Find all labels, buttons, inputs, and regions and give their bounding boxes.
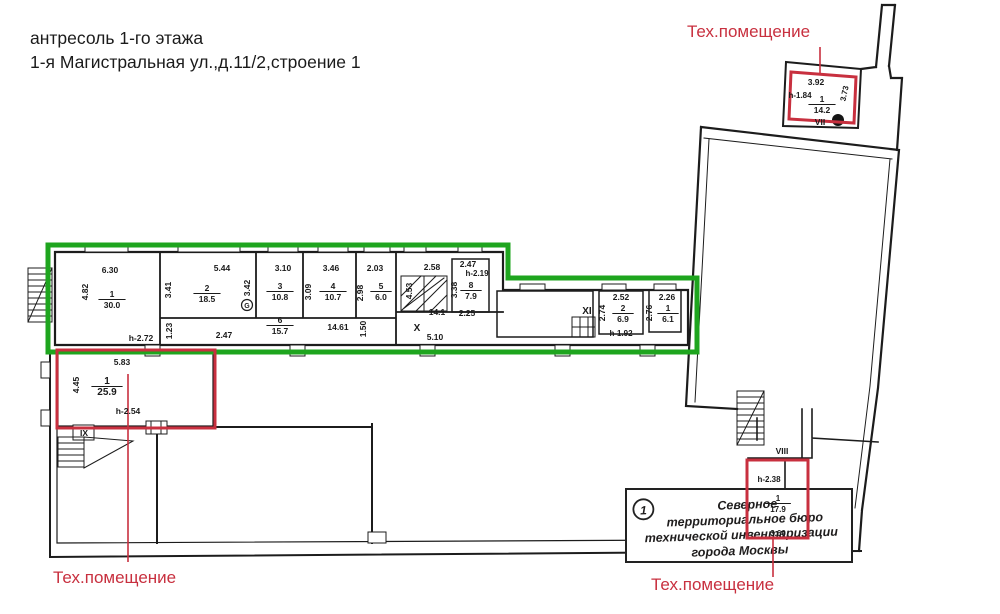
plan-label: 5.44 bbox=[214, 263, 231, 273]
seal-dot bbox=[832, 114, 844, 126]
plan-label: 25.9 bbox=[97, 387, 117, 398]
plan-label: h-2.54 bbox=[116, 406, 141, 416]
shaft-grid bbox=[572, 317, 595, 337]
plan-label: 8 bbox=[469, 280, 474, 290]
plan-title-line2: 1-я Магистральная ул.,д.11/2,строение 1 bbox=[30, 50, 361, 74]
tech-room-label-bottom-right: Тех.помещение bbox=[651, 575, 774, 595]
stamp-number: 1 bbox=[640, 503, 647, 517]
plan-label: 4.82 bbox=[80, 283, 90, 300]
plan-label: 14.61 bbox=[327, 322, 349, 332]
plan-label: X bbox=[414, 323, 421, 334]
plan-label: h-1.84 bbox=[788, 91, 812, 100]
right-section-inner bbox=[695, 138, 892, 508]
room-xi-walls bbox=[497, 291, 593, 337]
plan-label: 2.74 bbox=[597, 304, 607, 321]
plan-label: 6 bbox=[278, 315, 283, 325]
floor-plan-svg: 1 Северное территориальное бюро техничес… bbox=[0, 0, 1000, 614]
plan-label: 30.0 bbox=[104, 300, 121, 310]
plan-label: 14.1 bbox=[429, 307, 446, 317]
plan-label: 2 bbox=[621, 303, 626, 313]
plan-label: 2.47 bbox=[216, 330, 233, 340]
plan-label: 3.46 bbox=[323, 263, 340, 273]
plan-label: 2.47 bbox=[460, 259, 477, 269]
plan-label: 6.0 bbox=[375, 292, 387, 302]
tech-room-label-top-right: Тех.помещение bbox=[687, 22, 810, 42]
plan-label: 3.73 bbox=[839, 84, 851, 102]
plan-label: 4 bbox=[331, 281, 336, 291]
plan-label: 10.8 bbox=[272, 292, 289, 302]
plan-label: 1.50 bbox=[358, 320, 368, 337]
plan-label: 14.2 bbox=[814, 105, 831, 115]
right-section-outer bbox=[686, 5, 902, 551]
stair-ix bbox=[58, 437, 133, 468]
bottom-inner-wall bbox=[57, 428, 695, 543]
plan-label: 1 bbox=[110, 289, 115, 299]
plan-label: 3.38 bbox=[449, 281, 459, 298]
plan-label: 3.60 bbox=[770, 529, 786, 538]
plan-label: 5.83 bbox=[114, 357, 131, 367]
plan-label: 2.58 bbox=[424, 262, 441, 272]
plan-label: h-1.92 bbox=[609, 329, 633, 338]
stair-right bbox=[737, 391, 764, 445]
plan-label: VII bbox=[815, 117, 825, 127]
plan-label: 1 bbox=[104, 376, 110, 387]
plan-label: 2.03 bbox=[367, 263, 384, 273]
plan-label: XI bbox=[582, 306, 592, 317]
plan-label: VIII bbox=[776, 446, 789, 456]
plan-label: 2.52 bbox=[613, 292, 630, 302]
plan-label: 3.09 bbox=[303, 283, 313, 300]
plan-label: 3.10 bbox=[275, 263, 292, 273]
plan-label: 6.9 bbox=[617, 314, 629, 324]
plan-label: IX bbox=[80, 428, 88, 438]
plan-label: 1 bbox=[820, 94, 825, 104]
plan-label: 6.1 bbox=[662, 314, 674, 324]
plan-label: 1.23 bbox=[164, 322, 174, 339]
plan-label: h-2.19 bbox=[465, 269, 489, 278]
plan-label: 4.45 bbox=[71, 376, 81, 393]
plan-label: 2.76 bbox=[644, 304, 654, 321]
plan-label: 2.25 bbox=[459, 308, 476, 318]
plan-title-line1: антресоль 1-го этажа bbox=[30, 26, 361, 50]
plan-label: 5 bbox=[379, 281, 384, 291]
plan-label: 2.98 bbox=[355, 284, 365, 301]
tech-room-label-bottom-left: Тех.помещение bbox=[53, 568, 176, 588]
plan-label: 3.42 bbox=[242, 279, 252, 296]
plan-title: антресоль 1-го этажа 1-я Магистральная у… bbox=[30, 26, 361, 74]
plan-label: 3 bbox=[278, 281, 283, 291]
plan-label: 5.10 bbox=[427, 332, 444, 342]
plan-label: h-2.72 bbox=[129, 333, 154, 343]
plan-label: 2 bbox=[205, 283, 210, 293]
plan-label: 18.5 bbox=[199, 294, 216, 304]
plan-label: 1 bbox=[666, 303, 671, 313]
stamp-box: 1 Северное территориальное бюро техничес… bbox=[626, 489, 852, 562]
plan-label: 10.7 bbox=[325, 292, 342, 302]
plan-label: 2.26 bbox=[659, 292, 676, 302]
plan-label: 15.7 bbox=[272, 326, 289, 336]
plan-label: 3.92 bbox=[808, 77, 825, 87]
plan-label: h-2.38 bbox=[757, 475, 781, 484]
plan-label: 17.9 bbox=[770, 505, 786, 514]
plan-label: 4.53 bbox=[404, 282, 414, 299]
floor-plan-page: 1 Северное территориальное бюро техничес… bbox=[0, 0, 1000, 614]
plan-label: 3.41 bbox=[163, 281, 173, 298]
plan-label: 6.30 bbox=[102, 265, 119, 275]
plan-label: 1 bbox=[776, 494, 781, 503]
plan-label: G bbox=[244, 303, 250, 310]
plan-label: 7.9 bbox=[465, 291, 477, 301]
